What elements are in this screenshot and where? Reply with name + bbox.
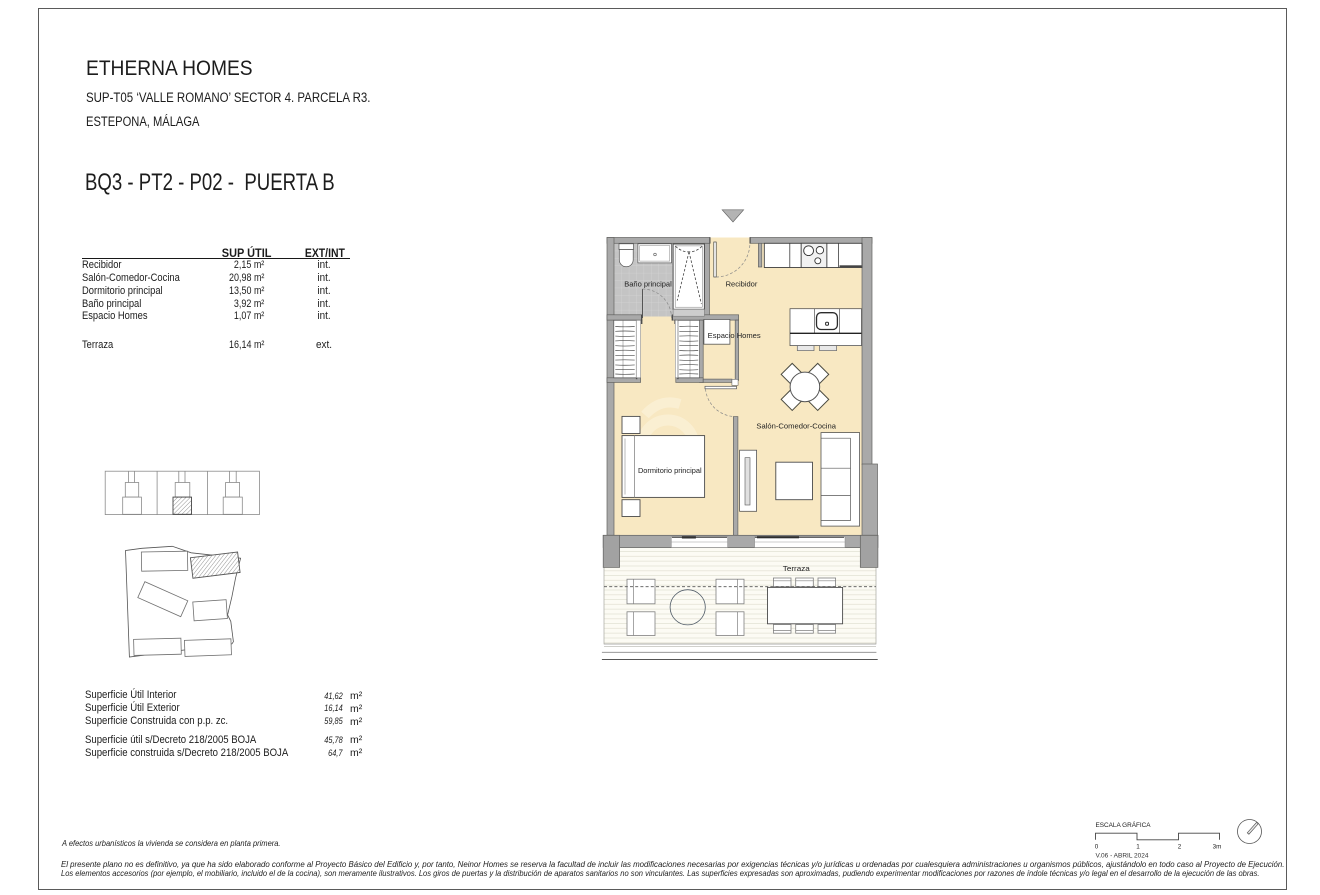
svg-text:3m: 3m — [1213, 844, 1222, 851]
svg-text:Salón-Comedor-Cocina: Salón-Comedor-Cocina — [756, 422, 836, 431]
svg-text:Dormitorio principal: Dormitorio principal — [638, 466, 702, 475]
svg-text:Recibidor: Recibidor — [726, 280, 758, 289]
svg-text:V.06 - ABRIL 2024: V.06 - ABRIL 2024 — [1096, 853, 1149, 860]
svg-text:Espacio Homes: Espacio Homes — [708, 331, 761, 340]
svg-text:ESCALA GRÁFICA: ESCALA GRÁFICA — [1096, 820, 1152, 829]
svg-text:Terraza: Terraza — [783, 564, 811, 573]
svg-text:1: 1 — [1136, 844, 1140, 851]
svg-text:Baño principal: Baño principal — [624, 280, 672, 289]
svg-text:0: 0 — [1095, 844, 1099, 851]
svg-text:2: 2 — [1178, 844, 1182, 851]
